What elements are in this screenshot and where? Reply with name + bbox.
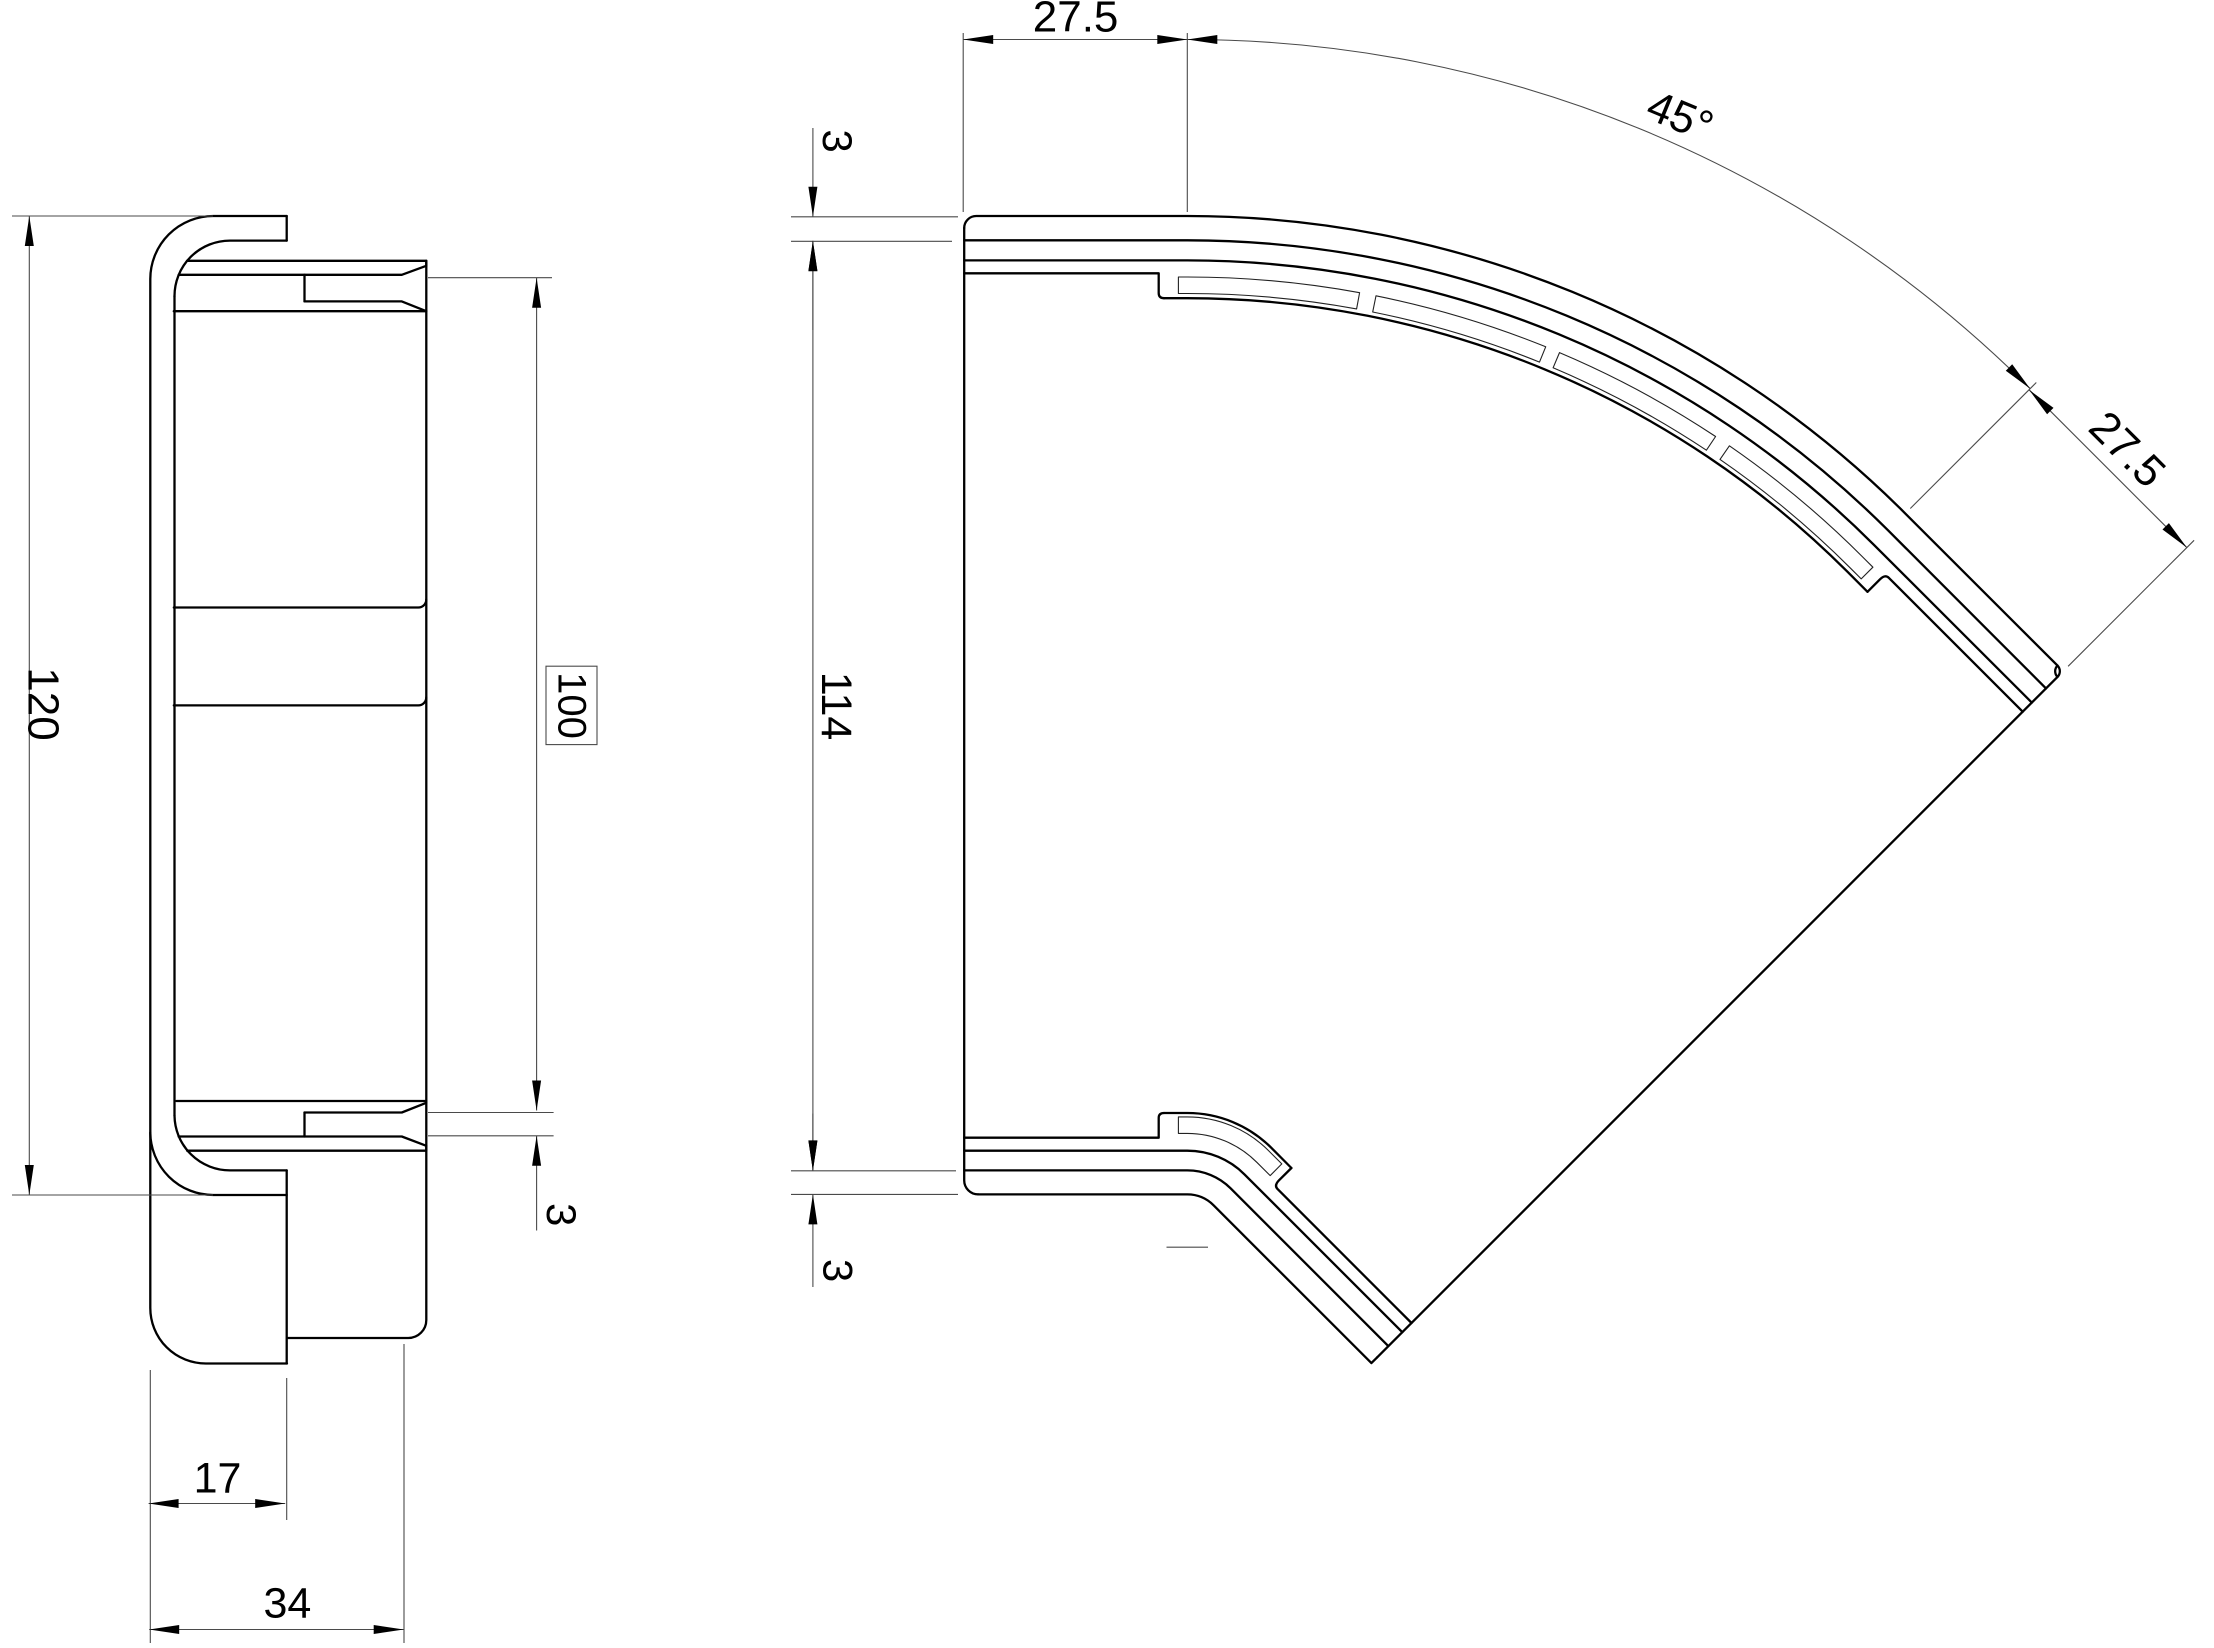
svg-text:3: 3: [814, 129, 861, 152]
svg-text:3: 3: [815, 1259, 862, 1282]
svg-text:45°: 45°: [1640, 81, 1720, 152]
svg-text:27.5: 27.5: [2079, 402, 2174, 497]
svg-text:17: 17: [194, 1455, 242, 1503]
svg-text:100: 100: [550, 672, 594, 739]
svg-text:27.5: 27.5: [1033, 0, 1119, 42]
svg-text:3: 3: [538, 1203, 585, 1226]
svg-text:120: 120: [19, 667, 68, 740]
svg-text:34: 34: [263, 1580, 311, 1628]
svg-text:114: 114: [812, 672, 860, 741]
